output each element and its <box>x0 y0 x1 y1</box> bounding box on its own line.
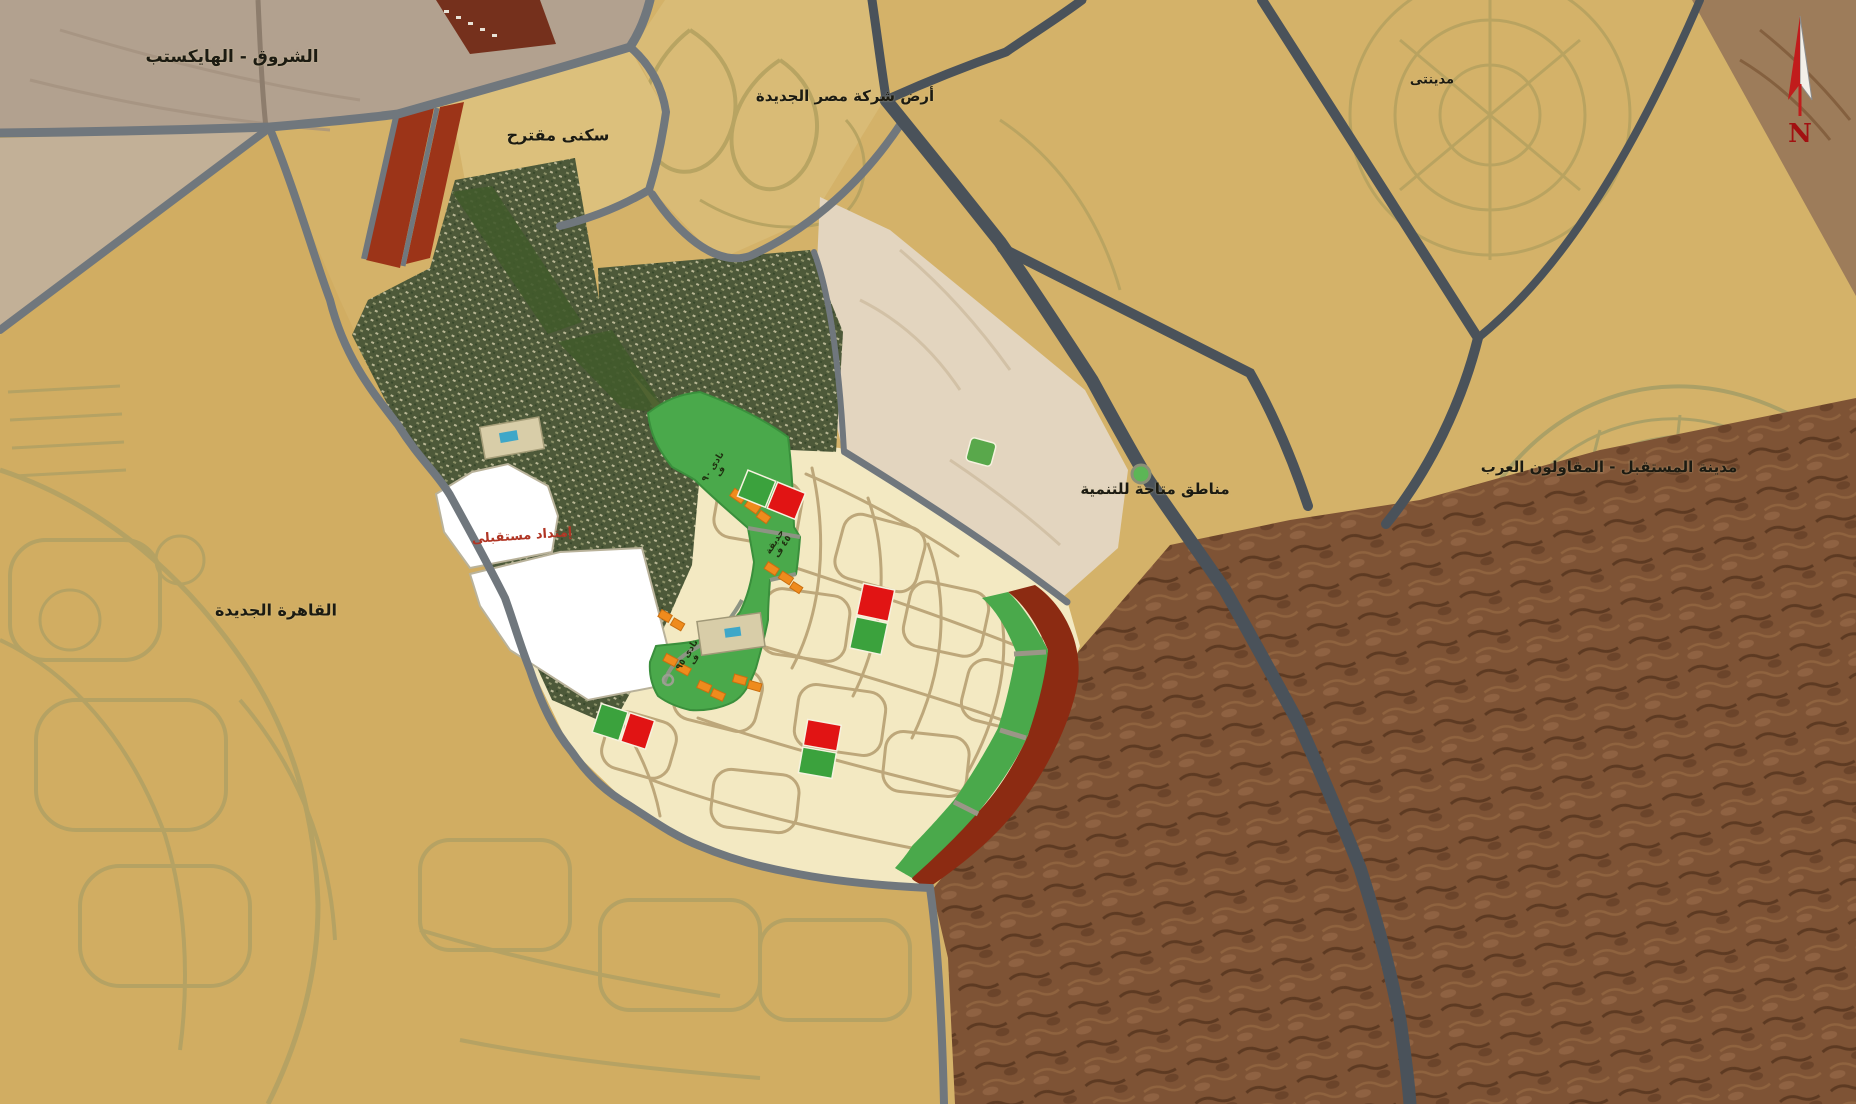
map-canvas <box>0 0 1856 1104</box>
region-label-new-cairo: القاهرة الجديدة <box>215 601 337 620</box>
region-label-proposed-housing: سكنى مقترح <box>507 126 610 145</box>
region-label-development-areas: مناطق متاحة للتنمية <box>1080 480 1229 498</box>
compass-north-letter: N <box>1788 119 1812 149</box>
region-label-mostakbal: مدينة المستقبل - المقاولون العرب <box>1481 458 1738 476</box>
region-label-shorouk: الشروق - الهايكستب <box>145 47 318 67</box>
region-label-madinaty: مدينتى <box>1410 73 1454 88</box>
masterplan-map: الشروق - الهايكستب سكنى مقترح أرض شركة م… <box>0 0 1856 1104</box>
region-label-misr-company: أرض شركة مصر الجديدة <box>756 87 934 105</box>
